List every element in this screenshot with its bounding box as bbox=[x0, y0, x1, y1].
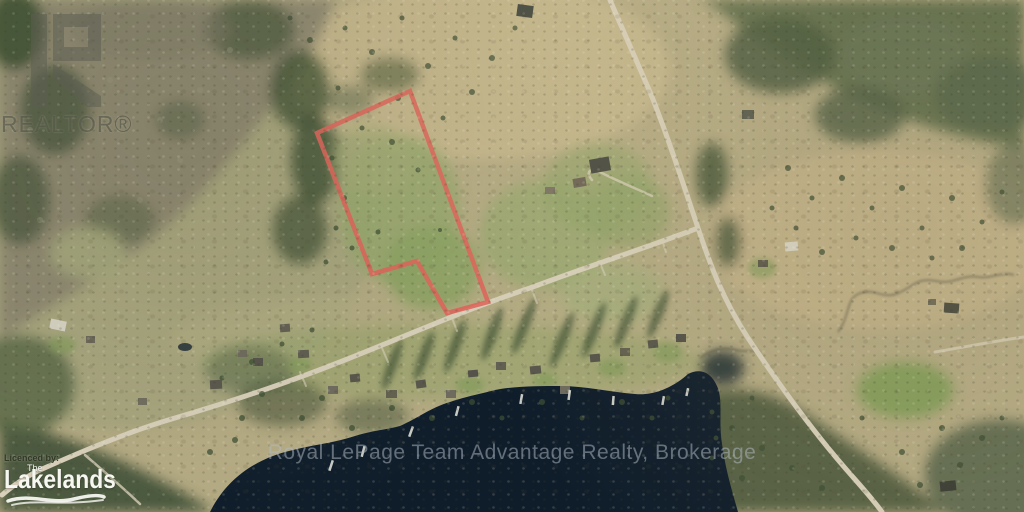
lakelands-name: Lakelands bbox=[4, 466, 116, 492]
realtor-logo-text: REALTOR® bbox=[1, 111, 150, 138]
brokerage-watermark: Royal LePage Team Advantage Realty, Brok… bbox=[268, 441, 757, 465]
realtor-r-icon bbox=[31, 14, 101, 107]
realtor-logo: REALTOR® bbox=[0, 14, 150, 138]
pond bbox=[178, 343, 192, 351]
satellite-map bbox=[0, 0, 1024, 512]
aerial-photo: REALTOR® Royal LePage Team Advantage Rea… bbox=[0, 0, 1024, 512]
licensed-by-label: Licenced by: bbox=[4, 453, 124, 463]
lakelands-logo: Licenced by: The Lakelands bbox=[4, 453, 124, 507]
